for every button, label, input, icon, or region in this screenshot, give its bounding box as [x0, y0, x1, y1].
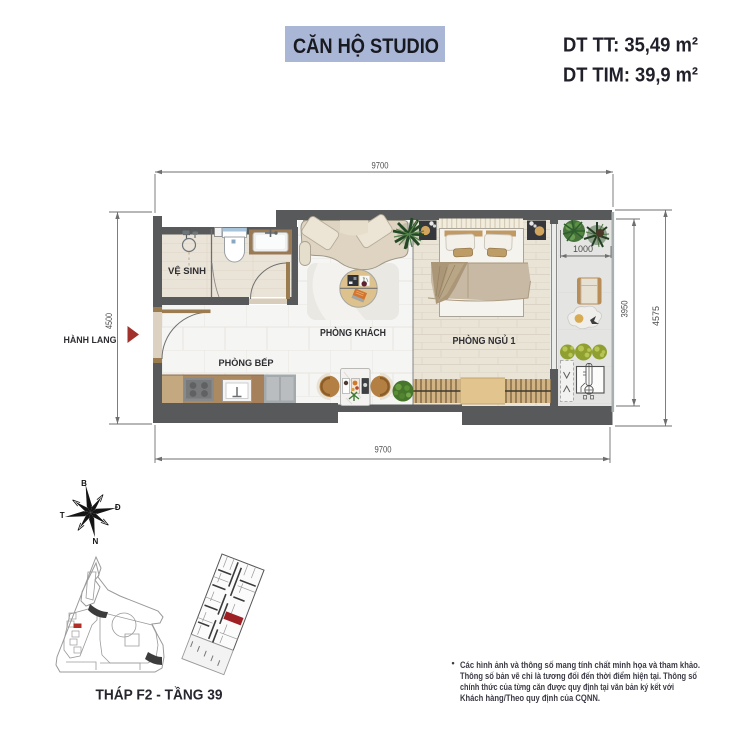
svg-text:9700: 9700 — [375, 445, 392, 455]
svg-text:4500: 4500 — [104, 313, 114, 329]
svg-text:Khách hàng/Theo quy định của C: Khách hàng/Theo quy định của CQNN. — [460, 693, 600, 703]
svg-text:Đ: Đ — [115, 503, 121, 512]
svg-text:Thông số bản vẽ chỉ là tương đ: Thông số bản vẽ chỉ là tương đối đến thờ… — [460, 671, 698, 681]
svg-text:N: N — [93, 537, 99, 546]
svg-text:9700: 9700 — [372, 161, 389, 171]
svg-text:chính thức của từng căn được q: chính thức của từng căn được quy định tạ… — [460, 682, 674, 692]
svg-text:DT TT: 35,49 m²: DT TT: 35,49 m² — [563, 35, 698, 57]
svg-text:1000: 1000 — [573, 244, 593, 254]
svg-text:PHÒNG NGỦ 1: PHÒNG NGỦ 1 — [453, 334, 516, 347]
svg-text:HÀNH LANG: HÀNH LANG — [64, 335, 117, 346]
svg-text:T: T — [60, 511, 65, 520]
svg-text:B: B — [81, 479, 87, 488]
svg-text:DT TIM: 39,9 m²: DT TIM: 39,9 m² — [563, 65, 698, 87]
svg-text:PHÒNG KHÁCH: PHÒNG KHÁCH — [320, 326, 386, 339]
svg-text:THÁP F2 - TẦNG 39: THÁP F2 - TẦNG 39 — [96, 687, 223, 704]
svg-text:3950: 3950 — [620, 301, 630, 318]
svg-text:VỆ SINH: VỆ SINH — [168, 265, 206, 276]
svg-text:4575: 4575 — [651, 306, 661, 326]
svg-text:•: • — [452, 658, 455, 668]
svg-text:PHÒNG BẾP: PHÒNG BẾP — [219, 357, 275, 369]
svg-text:Các hình ảnh và thông số mang: Các hình ảnh và thông số mang tính chất … — [460, 660, 700, 670]
svg-text:CĂN HỘ STUDIO: CĂN HỘ STUDIO — [293, 33, 439, 58]
